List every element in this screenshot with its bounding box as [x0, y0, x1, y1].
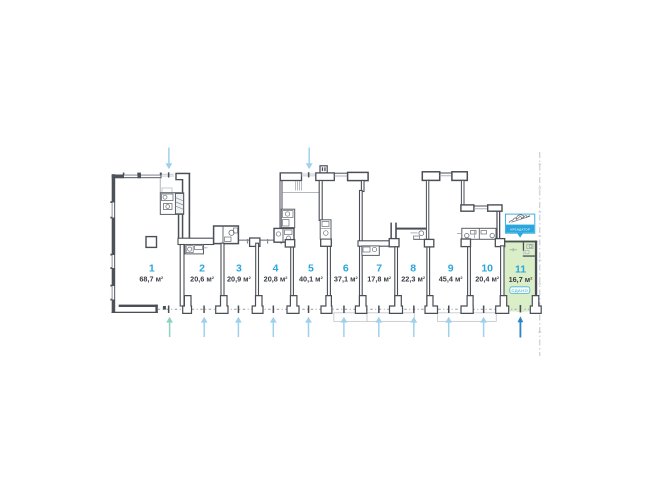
svg-text:8: 8 — [410, 263, 416, 275]
svg-text:40,1 м2: 40,1 м2 — [299, 274, 324, 283]
svg-text:10: 10 — [481, 263, 493, 275]
svg-text:68,7 м2: 68,7 м2 — [139, 274, 164, 283]
svg-text:11: 11 — [515, 264, 526, 276]
svg-text:5: 5 — [308, 263, 314, 275]
svg-text:АРЕНДАТОР: АРЕНДАТОР — [510, 228, 530, 232]
svg-text:45,4 м2: 45,4 м2 — [439, 274, 464, 283]
svg-text:16,7 м2: 16,7 м2 — [509, 275, 534, 284]
svg-text:4: 4 — [273, 263, 279, 275]
svg-text:20,9 м2: 20,9 м2 — [227, 274, 252, 283]
svg-text:3: 3 — [236, 263, 242, 275]
svg-text:37,1 м2: 37,1 м2 — [334, 274, 359, 283]
svg-text:СДАНО: СДАНО — [512, 288, 529, 293]
svg-text:1: 1 — [149, 263, 155, 275]
svg-text:22,3 м2: 22,3 м2 — [401, 274, 426, 283]
svg-text:7: 7 — [376, 263, 382, 275]
svg-text:17,8 м2: 17,8 м2 — [367, 274, 392, 283]
svg-text:9: 9 — [448, 263, 454, 275]
svg-text:20,6 м2: 20,6 м2 — [190, 274, 215, 283]
svg-text:2: 2 — [199, 263, 205, 275]
svg-text:6: 6 — [343, 263, 349, 275]
svg-text:20,4 м2: 20,4 м2 — [475, 274, 500, 283]
svg-text:20,8 м2: 20,8 м2 — [264, 274, 289, 283]
